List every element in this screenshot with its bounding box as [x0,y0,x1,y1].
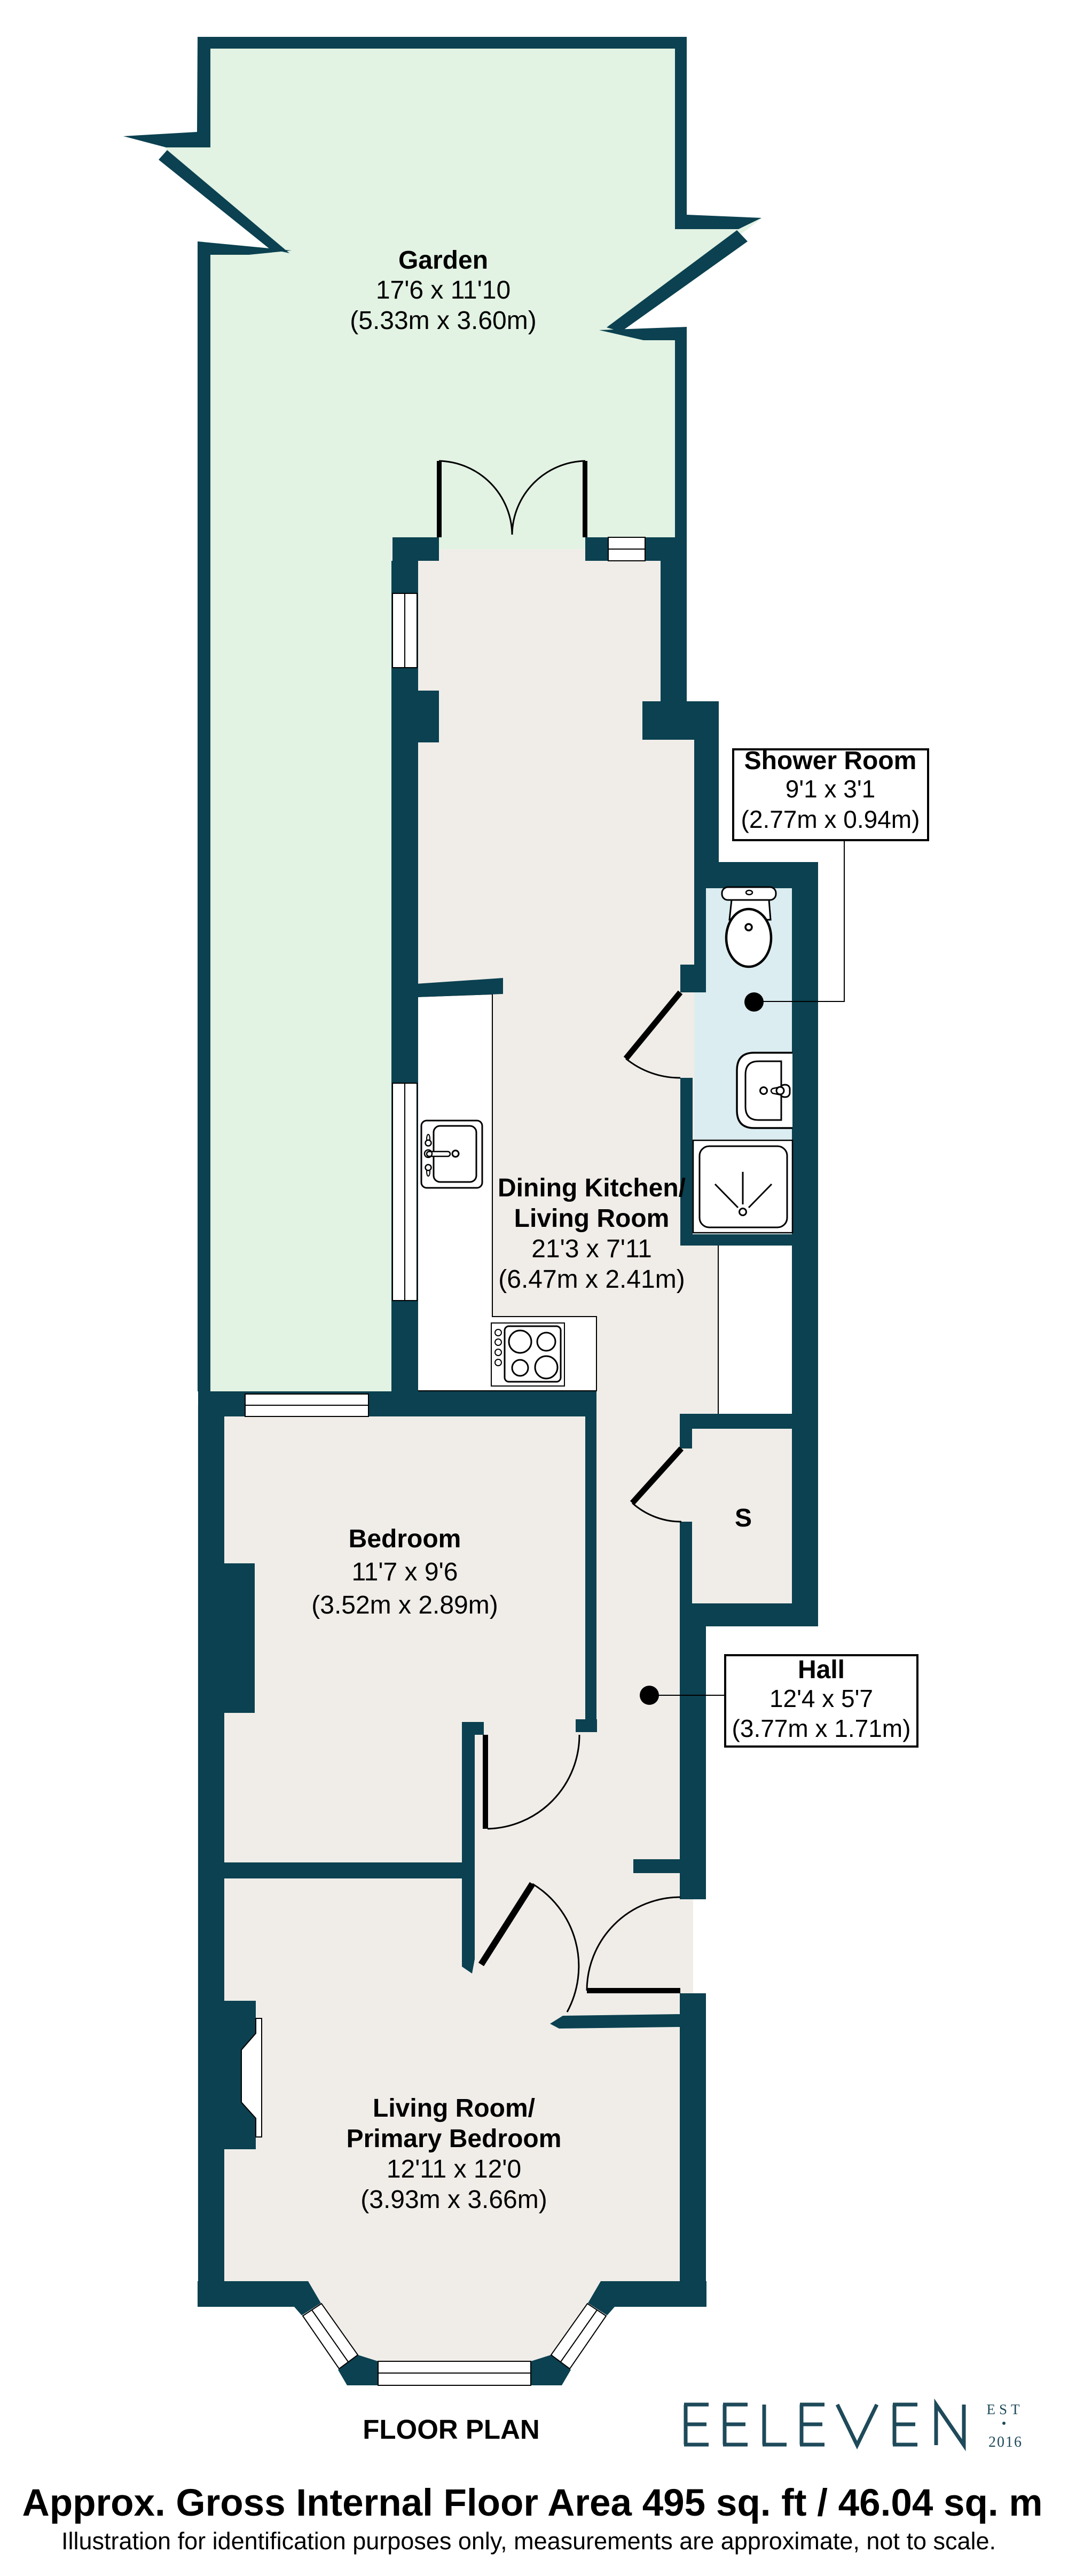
svg-text:(3.93m x 3.66m): (3.93m x 3.66m) [360,2186,547,2214]
svg-text:(3.77m x 1.71m): (3.77m x 1.71m) [732,1714,911,1742]
svg-text:FLOOR PLAN: FLOOR PLAN [363,2414,539,2445]
svg-text:11'7 x 9'6: 11'7 x 9'6 [352,1558,458,1586]
svg-text:Approx. Gross Internal Floor A: Approx. Gross Internal Floor Area 495 sq… [22,2482,1042,2524]
svg-text:Garden: Garden [398,246,488,275]
svg-text:Dining Kitchen/: Dining Kitchen/ [498,1174,686,1202]
svg-text:EST: EST [986,2401,1023,2417]
svg-text:21'3 x 7'11: 21'3 x 7'11 [531,1235,652,1263]
svg-text:12'11 x 12'0: 12'11 x 12'0 [387,2155,521,2183]
svg-text:Bedroom: Bedroom [349,1525,461,1553]
svg-text:Primary Bedroom: Primary Bedroom [347,2125,562,2153]
svg-text:S: S [735,1504,752,1532]
svg-text:17'6 x 11'10: 17'6 x 11'10 [376,276,511,304]
svg-text:Hall: Hall [798,1656,845,1684]
svg-text:Living Room/: Living Room/ [373,2094,535,2123]
svg-text:Living Room: Living Room [514,1204,670,1233]
svg-text:Illustration for identificatio: Illustration for identification purposes… [61,2527,996,2555]
svg-text:(3.52m x 2.89m): (3.52m x 2.89m) [311,1591,498,1619]
svg-text:12'4 x 5'7: 12'4 x 5'7 [769,1685,873,1712]
svg-text:Shower Room: Shower Room [744,747,917,775]
svg-text:(6.47m x 2.41m): (6.47m x 2.41m) [498,1265,685,1294]
svg-text:2016: 2016 [988,2434,1023,2450]
svg-text:(2.77m x 0.94m): (2.77m x 0.94m) [741,805,920,833]
svg-text:9'1 x 3'1: 9'1 x 3'1 [786,775,875,803]
svg-text:(5.33m x 3.60m): (5.33m x 3.60m) [350,307,536,335]
